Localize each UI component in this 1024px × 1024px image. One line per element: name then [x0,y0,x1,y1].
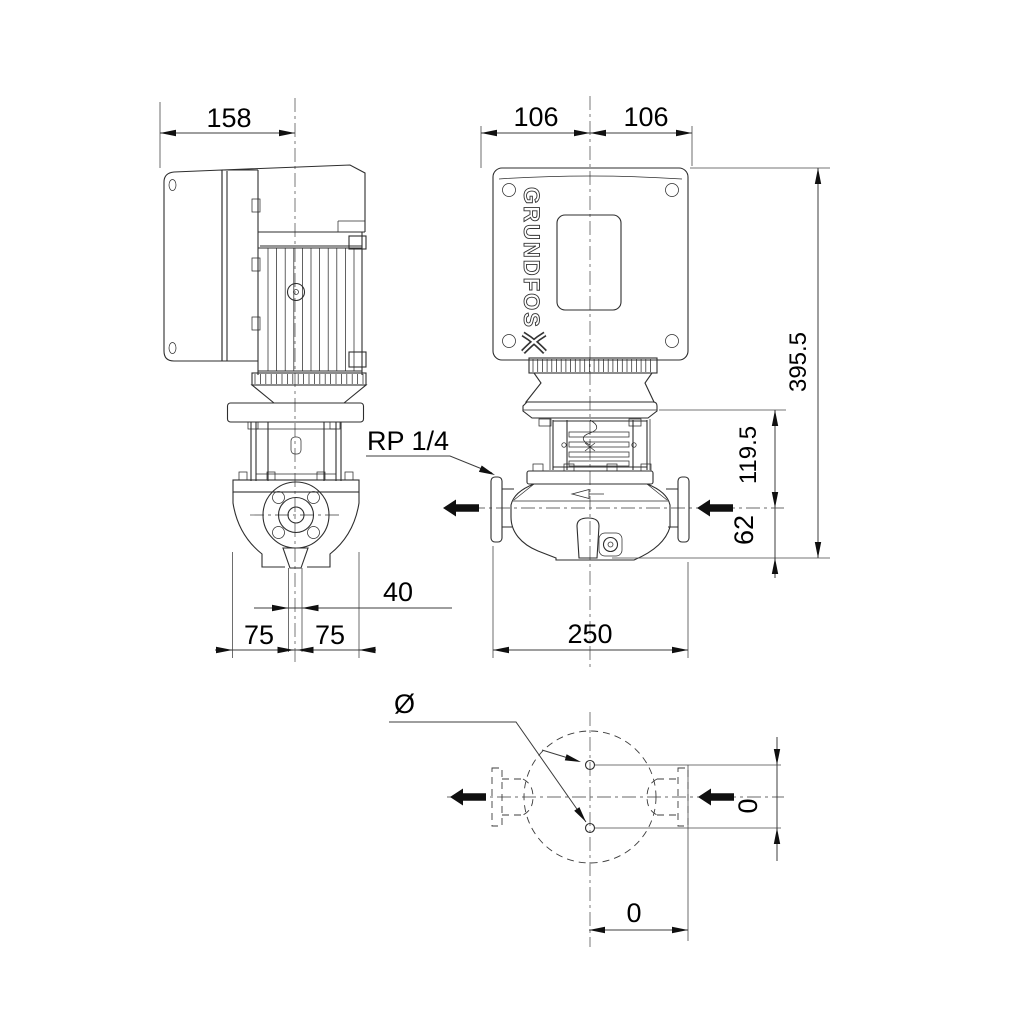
drawing-background [0,0,1024,1024]
dim-75-left-label: 75 [244,620,274,650]
dim-106-left-label: 106 [513,102,558,132]
dim-119-5-label: 119.5 [735,426,762,484]
dim-158-label: 158 [206,103,251,133]
dim-75-right-label: 75 [315,620,345,650]
rp14-label: RP 1/4 [367,426,449,456]
dim-250-label: 250 [567,619,612,649]
dim-106-right-label: 106 [623,102,668,132]
dim-0-vertical-label: 0 [733,798,763,813]
pump-dimensional-drawing: 158 40 75 75 RP 1/4 [0,0,1024,1024]
diameter-symbol-label: Ø [394,689,415,719]
dim-395-5-label: 395.5 [785,332,812,392]
dim-0-horizontal-label: 0 [626,898,641,928]
grundfos-logo: GRUNDFOS [519,187,544,329]
dim-62-label: 62 [729,515,759,545]
dim-40-label: 40 [383,577,413,607]
